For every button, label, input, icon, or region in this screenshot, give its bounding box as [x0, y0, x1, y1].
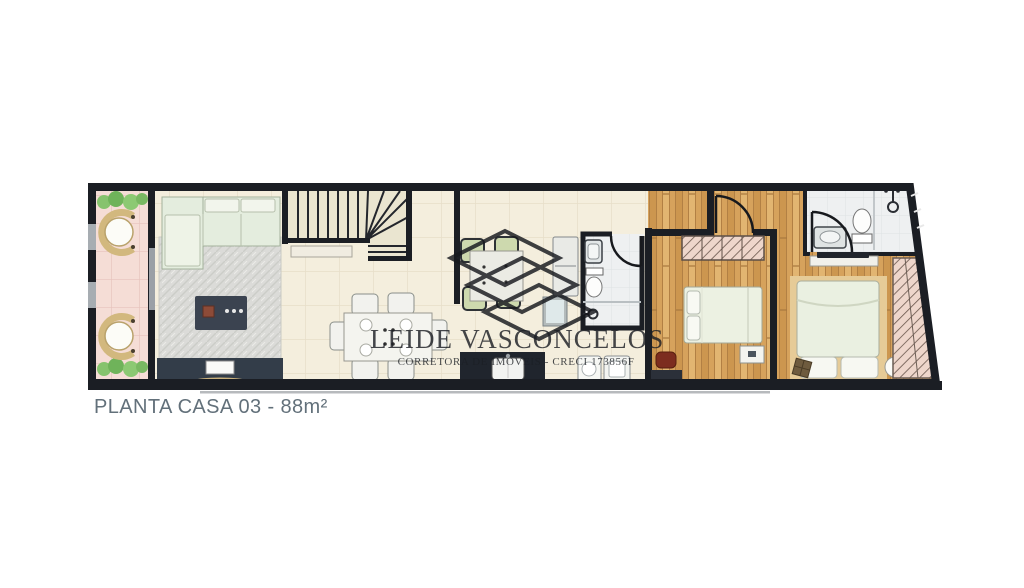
tv — [817, 251, 869, 258]
dining-chair — [352, 294, 378, 315]
wardrobe — [682, 236, 764, 260]
plan-caption: PLANTA CASA 03 - 88m² — [94, 396, 328, 419]
dining-table — [344, 313, 432, 361]
ensuite-bathroom — [807, 189, 917, 252]
breakfast-table — [470, 251, 523, 301]
bed-single — [684, 287, 762, 343]
toilet — [852, 209, 872, 243]
window — [88, 282, 96, 308]
sideboard — [291, 246, 352, 257]
window — [88, 224, 96, 250]
dining-chair — [388, 359, 414, 380]
staircase — [286, 184, 412, 261]
floor-plan-drawing — [0, 0, 1024, 588]
toilet — [586, 268, 603, 297]
service-area — [578, 356, 630, 382]
tv-console — [157, 358, 283, 383]
dining-chair — [388, 293, 414, 314]
coffee-table — [195, 296, 247, 330]
floor-plan-image: LEIDE VASCONCELOS CORRETORA DE IMÓVEIS -… — [0, 0, 1024, 588]
living-room — [157, 197, 283, 383]
floor-cushion — [792, 358, 812, 378]
stool — [656, 352, 676, 368]
window — [149, 248, 155, 310]
dining-chair — [352, 359, 378, 380]
